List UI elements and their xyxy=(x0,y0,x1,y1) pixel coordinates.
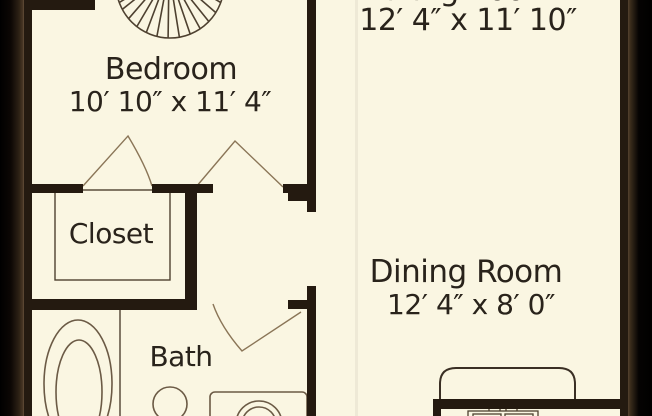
wall-kitchen-counter-top xyxy=(433,399,622,409)
toilet-icon xyxy=(153,387,187,416)
dining-table-icon xyxy=(440,368,575,402)
wall-central-upper xyxy=(307,0,316,212)
bathtub-icon xyxy=(44,320,112,416)
photo-border-left xyxy=(0,0,24,416)
floor-plan: Living Room 12′ 4″ x 11′ 10″ Bedroom 10′… xyxy=(0,0,652,416)
bedroom-dimensions: 10′ 10″ x 11′ 4″ xyxy=(69,87,272,118)
bedroom-label: Bedroom xyxy=(105,53,237,86)
fixtures-layer xyxy=(0,0,652,416)
wall-bedroom-south-3 xyxy=(283,184,307,193)
wall-bedroom-south-1 xyxy=(30,184,83,193)
dining-room-label: Dining Room xyxy=(370,255,563,289)
door-swing-icon xyxy=(196,141,283,187)
door-jamb-tick xyxy=(288,193,307,201)
wall-bath-north xyxy=(30,299,193,310)
closet-label: Closet xyxy=(69,219,153,250)
vanity-sink-icon xyxy=(210,392,307,416)
door-jamb-tick xyxy=(288,300,307,309)
wall-left-exterior xyxy=(24,0,32,416)
dining-room-dimensions: 12′ 4″ x 8′ 0″ xyxy=(387,290,555,321)
living-room-dimensions: 12′ 4″ x 11′ 10″ xyxy=(359,4,577,37)
wall-kitchen-counter-left xyxy=(433,399,441,416)
bath-label: Bath xyxy=(149,342,212,373)
wall-closet-right xyxy=(185,184,197,310)
ceiling-fan-icon xyxy=(116,0,224,38)
wall-bedroom-south-2 xyxy=(152,184,213,193)
door-swing-icon xyxy=(213,304,301,351)
door-swing-icon xyxy=(83,136,152,186)
wall-central-lower xyxy=(307,286,316,416)
paper-crease xyxy=(355,0,358,416)
photo-border-right xyxy=(628,0,652,416)
